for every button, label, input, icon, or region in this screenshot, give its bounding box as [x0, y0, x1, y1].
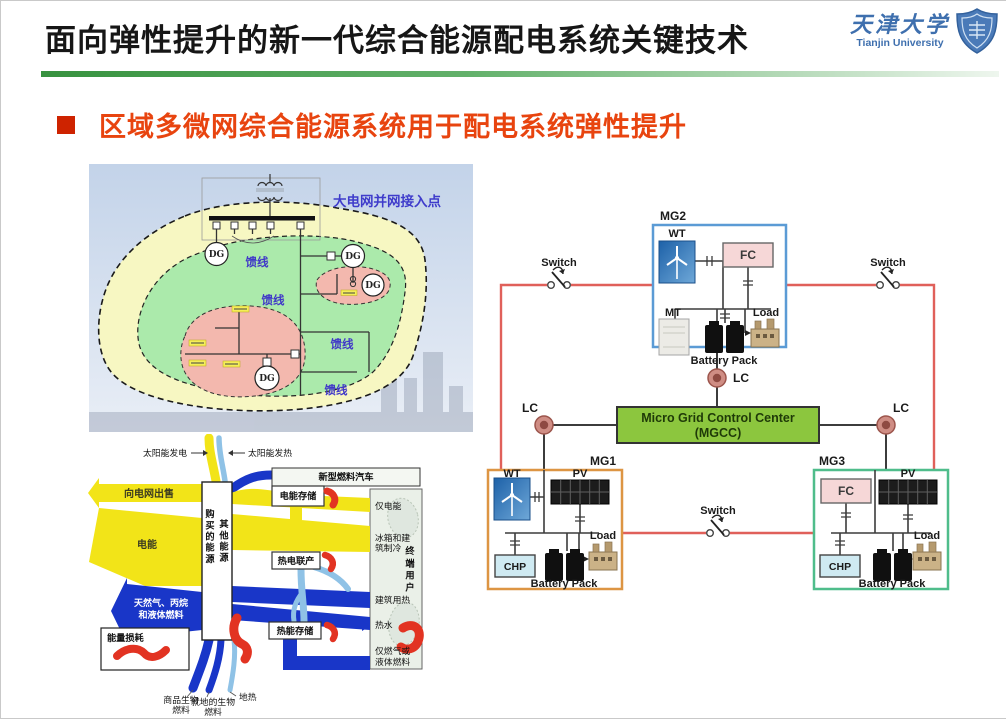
thermal-storage-label: 热能存储 — [277, 625, 314, 636]
lc-node-icon — [708, 369, 726, 387]
local-biofuel-label-l1: 就地的生物 — [191, 696, 235, 707]
mt-label: MT — [665, 307, 681, 319]
commercial-biofuel-label-l2: 燃料 — [172, 704, 190, 715]
battery-icon — [894, 549, 912, 581]
wt-label: WT — [503, 468, 520, 480]
energy-loss-label: 能量损耗 — [107, 632, 145, 643]
chp-label: CHP — [504, 561, 526, 573]
load-label: Load — [590, 530, 616, 542]
pv-label: PV — [573, 468, 588, 480]
pv-panel-icon — [879, 480, 937, 504]
battery-icon — [566, 549, 584, 581]
cooling-label-l1: 冰箱和建 — [375, 532, 410, 543]
switch-icon — [707, 515, 730, 536]
mgcc-label-l1: Micro Grid Control Center — [641, 411, 795, 425]
title-divider — [41, 71, 999, 77]
lc-node-icon — [877, 416, 895, 434]
mg1-label: MG1 — [590, 454, 616, 468]
tie-switch — [291, 350, 299, 358]
chp-label: CHP — [829, 561, 851, 573]
storage-connector — [290, 506, 302, 520]
purchased-energy-label: 购买的能源 — [204, 508, 215, 565]
dg-label: DG — [209, 250, 225, 260]
wind-turbine-icon — [494, 478, 530, 520]
lc-label: LC — [733, 371, 749, 385]
feeder-label: 馈线 — [246, 255, 269, 269]
lc-label: LC — [893, 401, 909, 415]
switch-icon — [548, 267, 571, 288]
solar-power-label: 太阳能发电 — [143, 447, 187, 458]
battery-pack-label: Battery Pack — [531, 578, 599, 590]
microgrid-zone-map-diagram: DG DG DG DG 大电网并网接入点 馈线 馈线 馈线 馈线 — [89, 164, 473, 432]
sell-to-grid-label: 向电网出售 — [124, 487, 174, 500]
storage-ribbon — [233, 492, 271, 496]
busbar — [209, 216, 315, 221]
section-heading-row: 区域多微网综合能源系统用于配电系统弹性提升 — [57, 105, 687, 144]
battery-icon — [545, 549, 563, 581]
mg2-label: MG2 — [660, 209, 686, 223]
university-logo: 天津大学 Tianjin University — [850, 7, 999, 55]
end-user-label: 终端用户 — [404, 545, 416, 595]
section-title: 区域多微网综合能源系统用于配电系统弹性提升 — [99, 105, 687, 144]
microturbine-icon — [659, 319, 689, 355]
wind-turbine-icon — [659, 241, 695, 283]
load-label: Load — [753, 307, 779, 319]
mgcc-label-l2: (MGCC) — [695, 426, 742, 440]
mg2-group: MG2 WT FC MT Load Battery Pack — [653, 209, 786, 367]
battery-icon — [873, 549, 891, 581]
solar-heat-label: 太阳能发热 — [248, 447, 292, 458]
university-emblem-icon — [955, 7, 999, 55]
switch-label: Switch — [700, 505, 736, 517]
electric-storage-label: 电能存储 — [280, 490, 317, 501]
red-square-bullet-icon — [57, 116, 75, 134]
lc-node-icon — [535, 416, 553, 434]
logo-cn-text: 天津大学 — [850, 14, 950, 36]
fc-label: FC — [838, 484, 854, 498]
gas-fuel-label-l2: 和液体燃料 — [137, 609, 183, 620]
mg3-label: MG3 — [819, 454, 845, 468]
other-energy-label: 其他能源 — [218, 518, 230, 564]
cooling-label-l2: 筑制冷 — [375, 542, 402, 553]
tie-switch — [263, 358, 271, 366]
battery-pack-label: Battery Pack — [691, 355, 759, 367]
lc-label: LC — [522, 401, 538, 415]
building-heat-label: 建筑用热 — [375, 594, 410, 605]
pv-label: PV — [901, 468, 916, 480]
fc-label: FC — [740, 248, 756, 262]
gas-fuel-label-l1: 天然气、丙烷 — [134, 597, 188, 608]
feeder-label: 馈线 — [262, 293, 285, 307]
pv-panel-icon — [551, 480, 609, 504]
switch-label: Switch — [541, 257, 577, 269]
dg-label: DG — [259, 374, 275, 384]
electricity-only-label: 仅电能 — [375, 500, 402, 511]
new-fuel-vehicle-label: 新型燃料汽车 — [318, 471, 373, 482]
switch-label: Switch — [870, 257, 906, 269]
tie-switch — [327, 252, 335, 260]
page-title: 面向弹性提升的新一代综合能源配电系统关键技术 — [45, 15, 749, 60]
dg-label: DG — [365, 281, 381, 291]
logo-en-text: Tianjin University — [850, 38, 950, 49]
fuel-only-label-l1: 仅燃气或 — [375, 645, 410, 656]
energy-flow-sankey-diagram: 太阳能发电 太阳能发热 向电网出售 电能 天然气、丙烷 和液体燃料 购买的能源 … — [87, 434, 477, 717]
dg-label: DG — [345, 252, 361, 262]
wt-label: WT — [668, 228, 685, 240]
grid-connection-point-label: 大电网并网接入点 — [333, 193, 441, 209]
microgrid-zone-large — [181, 306, 305, 397]
load-label: Load — [914, 530, 940, 542]
mg3-group: MG3 FC PV CHP Load Battery Pack — [814, 454, 948, 590]
university-logo-text: 天津大学 Tianjin University — [850, 14, 950, 49]
electricity-label: 电能 — [137, 538, 157, 551]
hot-water-label: 热水 — [375, 619, 393, 630]
battery-icon — [705, 321, 723, 353]
battery-icon — [726, 321, 744, 353]
switch-icon — [877, 267, 900, 288]
feeder-label: 馈线 — [325, 383, 348, 397]
multi-microgrid-network-diagram: Switch Switch Switch Micro Grid Control … — [483, 181, 1005, 621]
chp-label: 热电联产 — [278, 555, 315, 566]
slide: 面向弹性提升的新一代综合能源配电系统关键技术 天津大学 Tianjin Univ… — [0, 0, 1006, 719]
battery-pack-label: Battery Pack — [859, 578, 927, 590]
mg1-group: MG1 WT PV CHP Load Battery Pack — [488, 454, 622, 590]
feeder-label: 馈线 — [331, 337, 354, 351]
local-biofuel-label-l2: 燃料 — [204, 706, 222, 717]
geothermal-label: 地热 — [239, 691, 257, 702]
fuel-only-label-l2: 液体燃料 — [375, 656, 410, 667]
